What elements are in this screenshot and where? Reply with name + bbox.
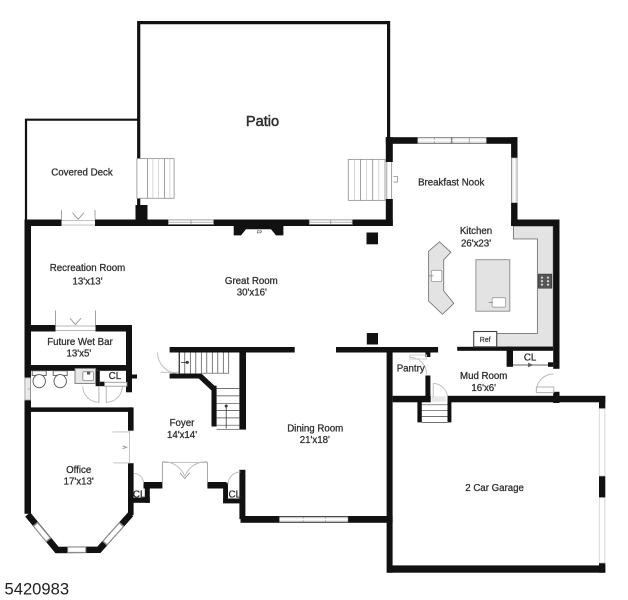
svg-text:14'x14': 14'x14'	[167, 430, 197, 441]
svg-text:5420983: 5420983	[5, 580, 70, 599]
svg-text:17'x13': 17'x13'	[64, 477, 94, 488]
svg-text:CL: CL	[524, 353, 537, 364]
svg-text:Office: Office	[66, 465, 91, 476]
svg-text:Kitchen: Kitchen	[460, 226, 492, 237]
svg-text:Mud Room: Mud Room	[460, 371, 507, 382]
svg-text:FP: FP	[257, 230, 263, 235]
svg-text:Ref: Ref	[480, 337, 491, 344]
svg-text:21'x18': 21'x18'	[300, 435, 330, 446]
svg-text:Covered Deck: Covered Deck	[51, 168, 113, 179]
svg-text:30'x16': 30'x16'	[237, 288, 267, 299]
svg-text:Future Wet Bar: Future Wet Bar	[47, 337, 113, 348]
svg-text:Dining Room: Dining Room	[287, 424, 343, 435]
svg-text:13'x13': 13'x13'	[72, 277, 102, 288]
svg-text:26'x23': 26'x23'	[461, 239, 491, 250]
svg-text:CL: CL	[133, 490, 146, 501]
svg-text:2 Car Garage: 2 Car Garage	[465, 483, 524, 494]
svg-text:13'x5': 13'x5'	[67, 349, 92, 360]
svg-text:Patio: Patio	[246, 114, 279, 130]
svg-text:Foyer: Foyer	[170, 418, 196, 429]
svg-text:16'x6': 16'x6'	[471, 383, 496, 394]
svg-text:Pantry: Pantry	[397, 364, 425, 375]
svg-text:Breakfast Nook: Breakfast Nook	[418, 178, 484, 189]
svg-text:Great Room: Great Room	[225, 276, 278, 287]
svg-text:CL: CL	[109, 371, 122, 382]
svg-text:CL: CL	[229, 489, 242, 500]
svg-text:Recreation Room: Recreation Room	[50, 263, 125, 274]
